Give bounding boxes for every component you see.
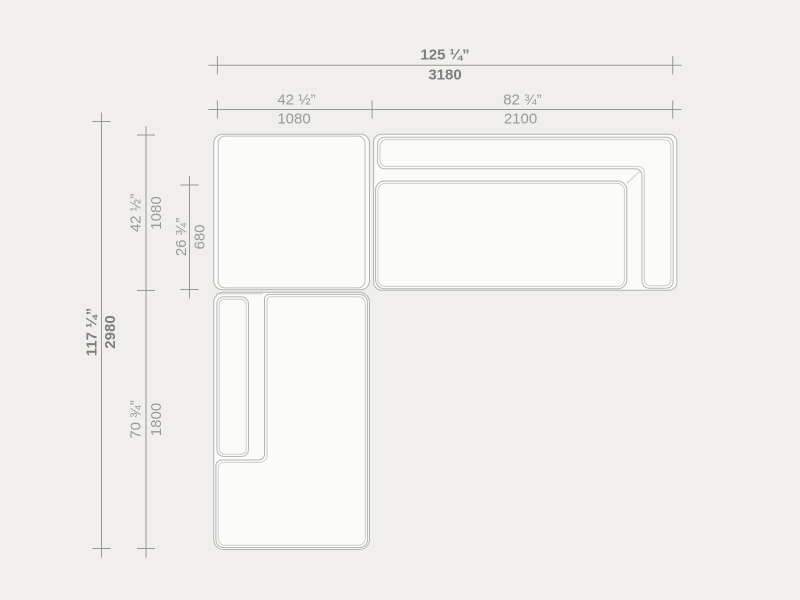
svg-text:42 ½”: 42 ½” bbox=[277, 92, 315, 109]
svg-text:1080: 1080 bbox=[277, 111, 310, 128]
svg-text:680: 680 bbox=[192, 224, 209, 249]
svg-text:42 ½”: 42 ½” bbox=[128, 194, 145, 232]
svg-text:1800: 1800 bbox=[148, 403, 165, 436]
svg-text:3180: 3180 bbox=[428, 67, 461, 84]
svg-text:2980: 2980 bbox=[102, 315, 119, 348]
svg-text:82 ¾”: 82 ¾” bbox=[503, 92, 541, 109]
svg-text:1080: 1080 bbox=[148, 196, 165, 229]
svg-text:117 ¼”: 117 ¼” bbox=[84, 308, 101, 356]
svg-text:125 ¼”: 125 ¼” bbox=[420, 47, 469, 64]
svg-text:70 ¾”: 70 ¾” bbox=[128, 400, 145, 438]
svg-text:2100: 2100 bbox=[504, 111, 537, 128]
svg-text:26 ¾”: 26 ¾” bbox=[173, 218, 190, 256]
